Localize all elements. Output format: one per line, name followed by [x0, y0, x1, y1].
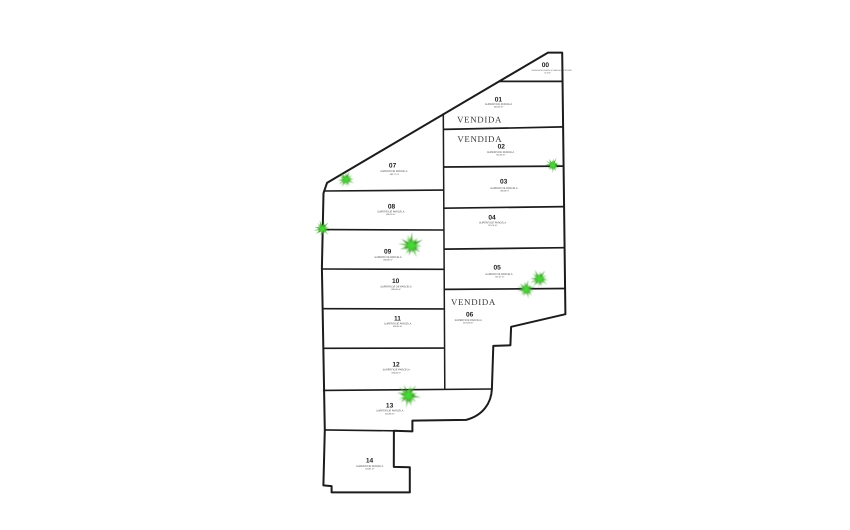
svg-text:SUPERFICIE PARCELA: SUPERFICIE PARCELA	[380, 170, 408, 173]
svg-text:595,56 m²: 595,56 m²	[393, 325, 403, 328]
svg-text:604,89 m²: 604,89 m²	[385, 412, 395, 415]
svg-text:07: 07	[389, 162, 397, 169]
svg-text:13: 13	[386, 403, 394, 410]
svg-text:SUPERFICIE PARCELA: SUPERFICIE PARCELA	[487, 151, 515, 154]
svg-text:595,00 m²: 595,00 m²	[392, 371, 402, 374]
svg-text:14: 14	[366, 458, 374, 465]
svg-text:09: 09	[384, 249, 392, 256]
svg-text:11: 11	[394, 315, 401, 322]
svg-text:SUPERFICIE PARCELA: SUPERFICIE PARCELA	[374, 256, 402, 259]
svg-text:08: 08	[388, 203, 396, 210]
svg-text:595,86 m²: 595,86 m²	[383, 259, 393, 262]
svg-text:595,18 m²: 595,18 m²	[386, 213, 396, 216]
svg-text:748,91 m²: 748,91 m²	[365, 468, 375, 471]
svg-text:SUPERFICIE PARCELA: SUPERFICIE PARCELA	[485, 103, 513, 106]
svg-text:VENDIDA: VENDIDA	[457, 115, 502, 125]
svg-text:10: 10	[392, 278, 400, 285]
svg-text:583,77 m²: 583,77 m²	[390, 173, 400, 176]
svg-text:2479,00 m²: 2479,00 m²	[463, 322, 474, 325]
svg-text:00: 00	[542, 62, 550, 69]
svg-text:VENDIDA: VENDIDA	[451, 297, 496, 307]
svg-text:05: 05	[494, 264, 502, 271]
svg-text:VENDIDA: VENDIDA	[457, 134, 502, 144]
svg-text:SUPERFICIE PARCELA CABEZA DE C: SUPERFICIE PARCELA CABEZA DE CENTRO	[531, 69, 572, 72]
svg-text:500,00 m²: 500,00 m²	[494, 106, 504, 109]
svg-text:SUPERFICIE PARCELA: SUPERFICIE PARCELA	[490, 187, 518, 190]
svg-text:SUPERFICIE PARCELA: SUPERFICIE PARCELA	[384, 323, 412, 326]
svg-text:744,57 m²: 744,57 m²	[495, 275, 505, 278]
svg-text:12: 12	[392, 361, 400, 368]
svg-text:595,56 m²: 595,56 m²	[391, 288, 401, 291]
svg-text:SUPERFICIE PARCELA: SUPERFICIE PARCELA	[455, 319, 483, 322]
svg-text:748,00 m²: 748,00 m²	[500, 190, 510, 193]
svg-text:03: 03	[500, 178, 508, 185]
svg-text:02: 02	[498, 144, 506, 151]
svg-text:SUPERFICIE PARCELA: SUPERFICIE PARCELA	[356, 465, 384, 468]
svg-text:41 5m²: 41 5m²	[544, 72, 551, 75]
svg-text:SUPERFICIE PARCELA: SUPERFICIE PARCELA	[485, 273, 513, 276]
svg-text:SUPERFICIE PARCELA: SUPERFICIE PARCELA	[383, 369, 411, 372]
svg-text:730,48 m²: 730,48 m²	[496, 153, 506, 156]
svg-text:SUPERFICIE DE PARCELA: SUPERFICIE DE PARCELA	[380, 286, 412, 289]
svg-text:SUPERFICIE PARCELA: SUPERFICIE PARCELA	[377, 211, 405, 214]
svg-text:06: 06	[466, 312, 474, 319]
svg-text:SUPERFICIE PARCELA: SUPERFICIE PARCELA	[479, 221, 507, 224]
svg-text:740,78 m²: 740,78 m²	[488, 224, 498, 227]
svg-text:SUPERFICIE PARCELA: SUPERFICIE PARCELA	[376, 410, 404, 413]
